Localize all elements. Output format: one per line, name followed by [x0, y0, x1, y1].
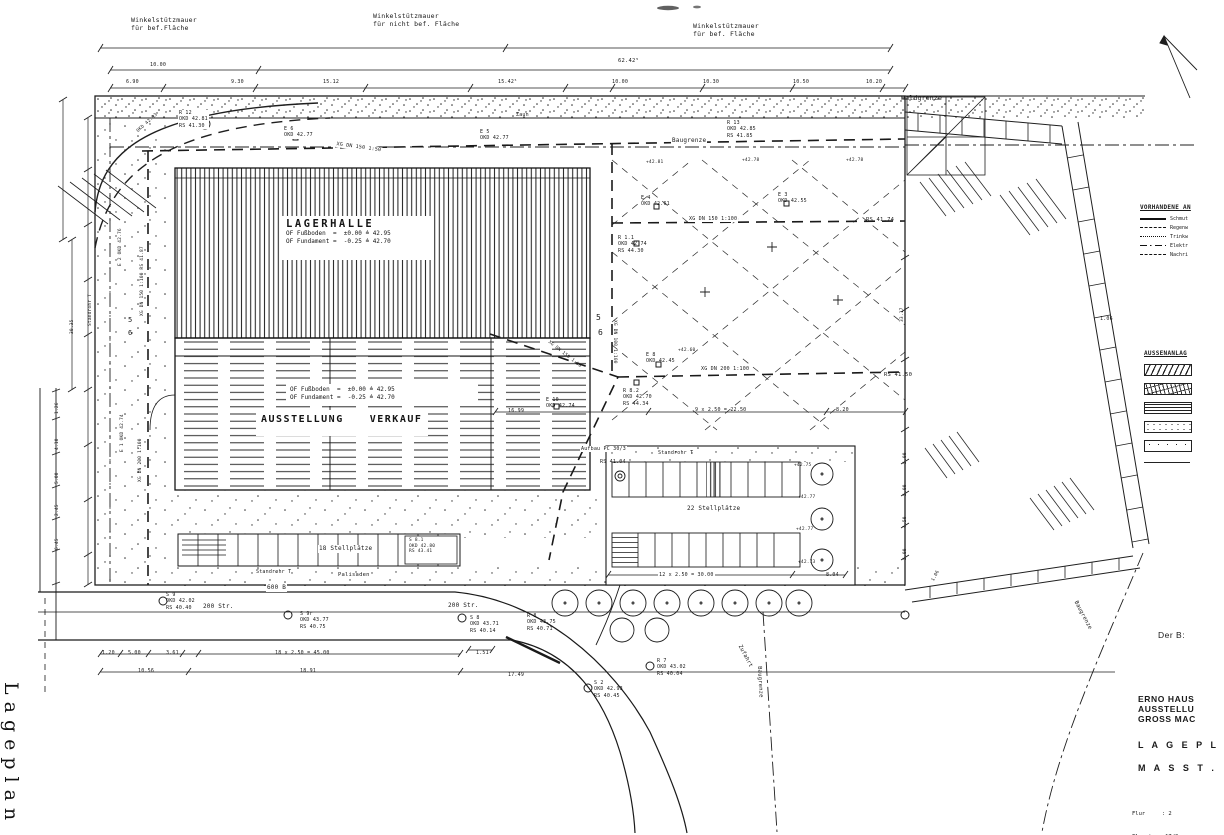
legend-surface-swatch-sw-line	[1144, 462, 1190, 463]
legend-utility-item: Nachri	[1140, 250, 1224, 259]
plan-annotation: 10.50	[793, 79, 809, 85]
plan-annotation: S 8 OKD 43.71 RS 40.14	[470, 615, 499, 634]
plan-annotation: +42.75	[794, 463, 811, 469]
plan-annotation: S 8.1 OKD 42.80 RS 43.41	[408, 538, 436, 555]
plan-annotation: 1.26	[55, 402, 61, 414]
plan-annotation: R 13 OKD 42.85 RS 41.85	[726, 120, 757, 139]
plan-annotation: 2.45	[55, 504, 61, 516]
plan-annotation: 5.00	[128, 650, 141, 656]
plan-annotation: 4.10	[55, 438, 61, 450]
client-line-2: AUSSTELLU	[1138, 704, 1196, 714]
parking-right	[606, 446, 855, 585]
plan-annotation: XG DN 200 1:100	[138, 438, 144, 482]
plan-annotation: +42.77	[798, 495, 815, 501]
plan-annotation: E 8 OKD 42.45	[646, 352, 675, 365]
legend-surface-swatch-sw-rubble	[1144, 383, 1192, 395]
plan-annotation: R 1.1 OKD 42.74 RS 44.30	[618, 235, 647, 254]
legend-utility-item: Trinkw	[1140, 232, 1224, 241]
plan-annotation: Standrohr T	[256, 569, 291, 575]
plan-annotation: RS 41.50	[884, 372, 912, 379]
plan-annotation: 6	[128, 329, 132, 338]
plan-annotation: 12 x 2.50 = 30.00	[658, 572, 715, 578]
legend-existing-utilities: VORHANDENE AN SchmutRegenwTrinkwElektrNa…	[1140, 204, 1224, 259]
plan-annotation: 22 Stellplätze	[686, 505, 741, 513]
ln-fine-line-icon	[1140, 254, 1166, 255]
plan-annotation: 18 x 2.50 = 45.00	[275, 650, 330, 656]
site-plan-page: Lageplan LAGERHALLE OF Fußboden = ±0.00 …	[0, 0, 1224, 835]
plan-annotation: 16.99	[508, 408, 524, 414]
legend-utility-label: Trinkw	[1170, 234, 1188, 240]
ln-dashdot-line-icon	[1140, 245, 1166, 247]
client-line-1: ERNO HAUS	[1138, 694, 1196, 704]
plan-annotation: 6.45	[55, 538, 61, 550]
legend-surface-swatch-sw-dots	[1144, 440, 1192, 452]
parcel-info: Flur : 2 Flurst. : 17/3 Trennstück K F	[1132, 796, 1188, 835]
lagerhalle-floor-level: OF Fußboden = ±0.00 ≙ 42.95	[286, 230, 391, 238]
plan-annotation: E 4 OKD 42.61	[641, 195, 670, 208]
plan-annotation: 10.00	[150, 62, 166, 68]
lagerhalle-foundation-level: OF Fundament = -0.25 ≙ 42.70	[286, 238, 391, 246]
plan-annotation: Standrohr T	[658, 450, 693, 456]
plan-annotation: 9 x 2.50 = 22.50	[695, 407, 746, 413]
plan-annotation: +42.77	[796, 527, 813, 533]
plan-annotation: 10.20	[866, 79, 882, 85]
lagerhalle-label-block: LAGERHALLE OF Fußboden = ±0.00 ≙ 42.95 O…	[286, 218, 391, 246]
plan-annotation: 18 Stellplätze	[318, 545, 373, 553]
legend-surface-swatch-sw-lines	[1144, 402, 1192, 414]
plan-annotation: S 2 OKD 42.93 RS 40.45	[594, 680, 623, 699]
client-line-3: GROSS MAC	[1138, 714, 1196, 724]
plan-annotation: E 6 OKD 42.77	[283, 126, 314, 139]
plan-annotation: 17.49	[508, 672, 524, 678]
plan-annotation: +42.78	[742, 158, 759, 164]
plan-annotation: Winkelstützmauer für bef.Fläche	[131, 16, 197, 32]
plan-annotation: 200 Str.	[448, 602, 479, 610]
legend-outdoor-surfaces: AUSSENANLAG	[1144, 350, 1192, 473]
legend-surfaces-title: AUSSENANLAG	[1144, 350, 1192, 357]
plan-annotation: 10.00	[612, 79, 628, 85]
plan-annotation: 1.06	[1100, 316, 1113, 322]
plan-annotation: 5	[128, 316, 132, 325]
ausstellung-floor-level: OF Fußboden = ±0.00 ≙ 42.95	[290, 386, 395, 394]
plan-annotation: S 9r OKD 43.77 RS 40.75	[300, 611, 329, 630]
plan-annotation: 5.00	[903, 484, 909, 496]
plan-annotation: 10.56	[138, 668, 154, 674]
plan-annotation: 18.91	[300, 668, 316, 674]
plan-annotation: 5	[596, 313, 601, 323]
plan-annotation: 10.30	[703, 79, 719, 85]
legend-utility-item: Schmut	[1140, 214, 1224, 223]
legend-utility-label: Regenw	[1170, 225, 1188, 231]
title-block-client: ERNO HAUS AUSSTELLU GROSS MAC	[1138, 694, 1196, 724]
drawing-title-vertical: Lageplan	[0, 682, 22, 827]
plan-annotation: 15.12	[323, 79, 339, 85]
plan-annotation: Winkelstützmauer für nicht bef. Fläche	[373, 12, 459, 28]
plan-annotation: 33.17	[900, 307, 906, 322]
plan-annotation: S 9 OKD 42.02 RS 40.40	[166, 592, 195, 611]
plan-annotation: R 8 OKD 43.75 RS 40.71	[527, 613, 556, 632]
plan-annotation: XG DN 100 1:100	[611, 320, 617, 364]
plan-annotation: +42.81	[646, 160, 663, 166]
legend-utilities-title: VORHANDENE AN	[1140, 204, 1224, 211]
plan-annotation: R 8.2 OKD 42.70 RS 44.34	[623, 388, 652, 407]
plan-scale: M A S S T .	[1138, 763, 1217, 773]
ausstellung-levels-block: OF Fußboden = ±0.00 ≙ 42.95 OF Fundament…	[290, 386, 395, 402]
plan-annotation: 8.04	[826, 572, 839, 578]
plan-annotation: 5.00	[903, 548, 909, 560]
legend-surface-swatch-sw-diag	[1144, 364, 1192, 376]
approval-note: Der B:	[1158, 630, 1185, 640]
plan-annotation: 6.90	[126, 79, 139, 85]
north-arrow	[1160, 36, 1197, 98]
plan-annotation: E 1 OKD 42.74	[120, 414, 126, 452]
plan-annotation: Standrohr T	[88, 294, 94, 326]
plan-annotation: XG DN 200 1:100	[700, 366, 750, 372]
plan-annotation: 8.20	[836, 407, 849, 413]
legend-utility-item: Elektr	[1140, 241, 1224, 250]
ln-dash-line-icon	[1140, 227, 1166, 228]
ln-dot-line-icon	[1140, 236, 1166, 237]
plan-annotation: 200 Str.	[203, 603, 234, 611]
plan-annotation: Aufbau PC 30/3	[580, 446, 627, 452]
legend-utility-label: Elektr	[1170, 243, 1188, 249]
flur-line: Flur : 2	[1132, 811, 1188, 819]
plan-annotation: 1.51	[476, 650, 489, 656]
plan-annotation: 6	[598, 328, 603, 338]
ausstellung-verkauf-label: AUSSTELLUNG VERKAUF	[258, 413, 425, 426]
plan-annotation: 3.61	[166, 650, 179, 656]
legend-utility-label: Nachri	[1170, 252, 1188, 258]
verkauf-name: VERKAUF	[370, 414, 423, 425]
plan-annotation: +42.73	[798, 560, 815, 566]
lagerhalle-name: LAGERHALLE	[286, 218, 391, 230]
legend-utility-label: Schmut	[1170, 216, 1188, 222]
plan-annotation: Palisaden	[338, 572, 370, 579]
ausstellung-name: AUSSTELLUNG	[261, 414, 344, 425]
plan-annotation: E 5 OKD 42.77	[479, 129, 510, 142]
plan-annotation: R 7 OKD 43.02 RS 40.04	[657, 658, 686, 677]
plan-annotation: Zaun	[516, 112, 529, 118]
plan-annotation: 30.35	[70, 319, 76, 334]
ausstellung-foundation-level: OF Fundament = -0.25 ≙ 42.70	[290, 394, 395, 402]
plan-annotation: R 12 OKD 42.81 RS 41.30	[178, 110, 209, 129]
plan-type: L A G E P L	[1138, 740, 1219, 750]
plan-annotation: RS 41.04	[600, 459, 626, 465]
plan-annotation: XG DN 150 1:100	[688, 216, 738, 222]
plan-annotation: +42.78	[846, 158, 863, 164]
plan-annotation: E 3 OKD 42.55	[778, 192, 807, 205]
plan-annotation: 600 B	[266, 584, 287, 592]
legend-utility-item: Regenw	[1140, 223, 1224, 232]
plan-annotation: XG DN 150 1:100 RS 41.87	[140, 246, 146, 316]
plan-annotation: E 10 OKD 42.74	[546, 397, 575, 410]
plan-annotation: E 2 OKD 42.76	[118, 228, 124, 266]
plan-annotation: 62.42⁵	[618, 58, 639, 65]
plan-annotation: 15.42⁵	[498, 79, 517, 85]
plan-annotation: 1.20	[102, 650, 115, 656]
legend-surface-swatch-sw-speck	[1144, 421, 1192, 433]
building-lagerhalle	[175, 168, 590, 338]
ln-solid-line-icon	[1140, 218, 1166, 220]
plan-annotation: Winkelstützmauer für bef. Fläche	[693, 22, 759, 38]
plan-annotation: Baugrenze	[671, 137, 707, 145]
plan-annotation: RS 41.74	[866, 217, 894, 224]
plan-annotation: Waldgrenze	[901, 94, 942, 102]
plan-annotation: 5.00	[55, 472, 61, 484]
plan-annotation: 5.00	[903, 452, 909, 464]
plan-annotation: 9.30	[231, 79, 244, 85]
plan-annotation: 4.50	[903, 516, 909, 528]
plan-annotation: +42.60	[678, 348, 695, 354]
